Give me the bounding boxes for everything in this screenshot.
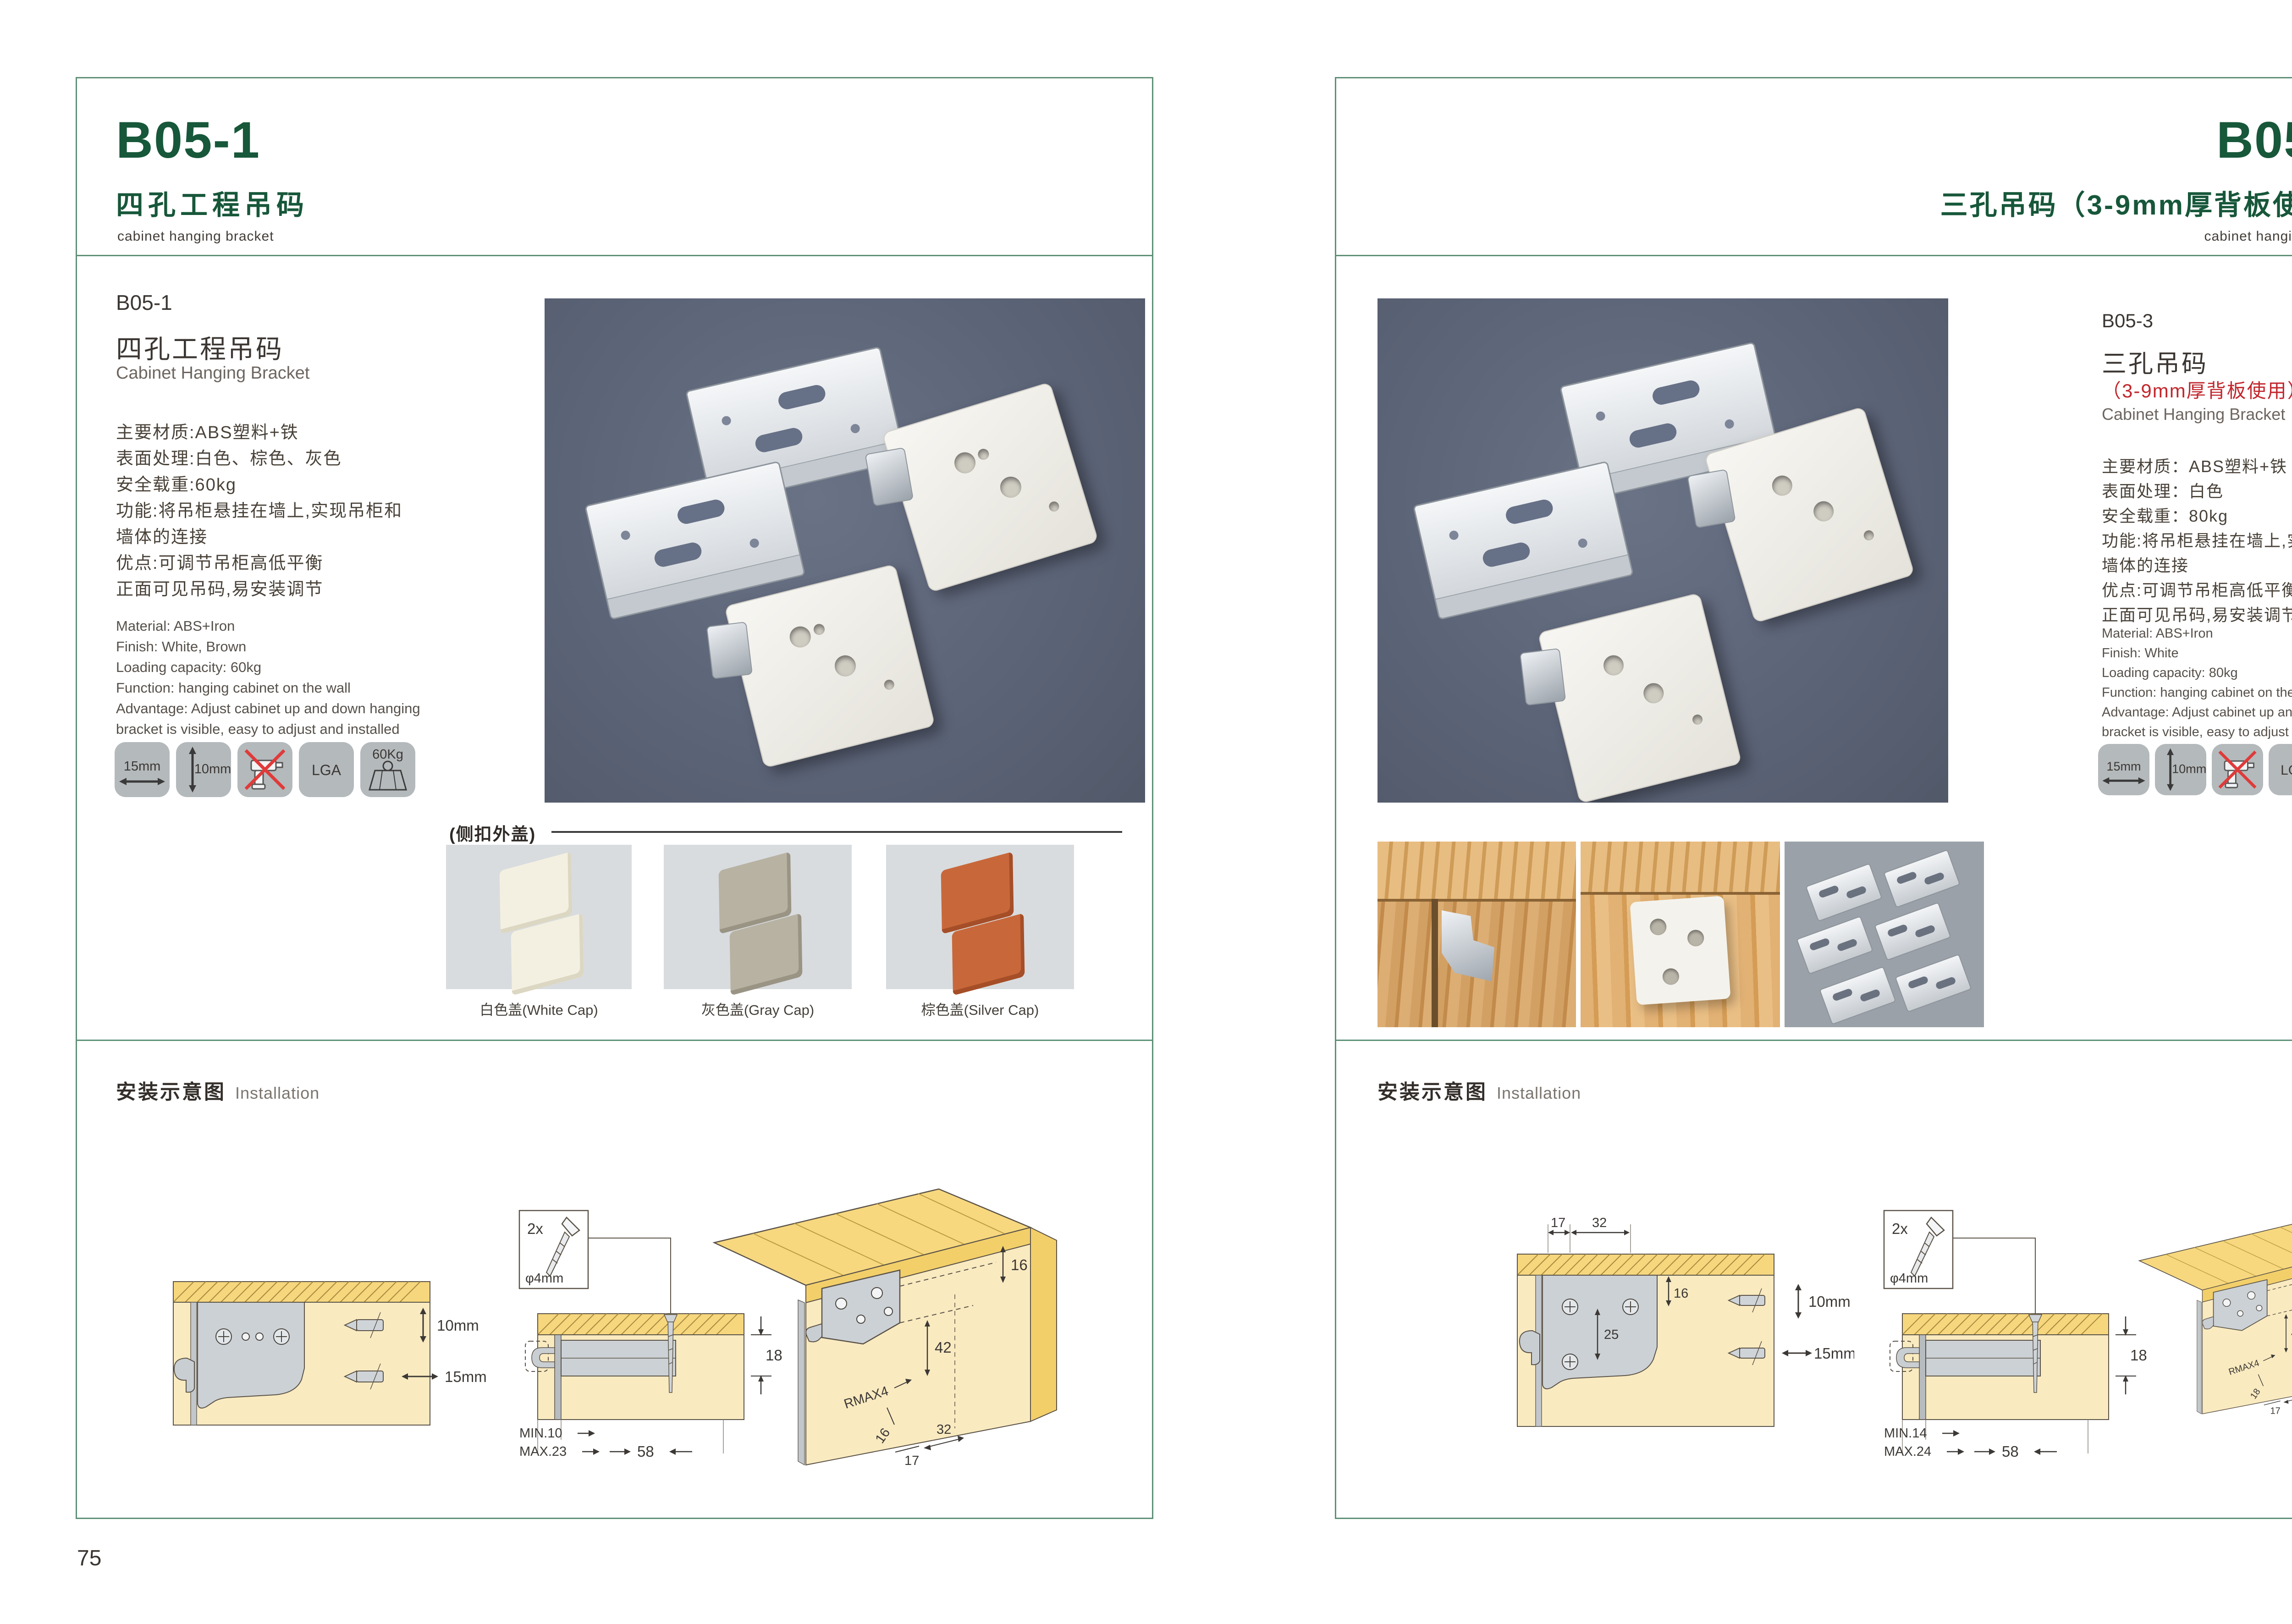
lga-icon: LGA bbox=[299, 742, 354, 797]
specs-en: Material: ABS+Iron Finish: White Loading… bbox=[2102, 624, 2292, 742]
dim-label: 42 bbox=[935, 1339, 952, 1356]
dim-label: 10mm bbox=[1808, 1293, 1851, 1310]
cap-photo-silver bbox=[886, 845, 1074, 989]
dim-label: MIN.14 bbox=[1884, 1426, 1927, 1441]
page-title-cn: 三孔吊码（3-9mm厚背板使用） bbox=[1940, 183, 2292, 223]
cap-label: 棕色盖(Silver Cap) bbox=[886, 998, 1074, 1019]
icon-label: 15mm bbox=[2106, 760, 2141, 773]
white-bracket bbox=[724, 564, 936, 768]
installation-diagram-section: 17 32 16 25 10mm 15mm bbox=[1492, 1211, 1854, 1467]
dim-label: 17 bbox=[904, 1453, 919, 1468]
page-title-cn: 四孔工程吊码 bbox=[116, 183, 309, 223]
icon-label: LGA bbox=[312, 762, 342, 778]
page-title-code: B05-3 bbox=[2216, 110, 2292, 170]
caps-heading: (侧扣外盖) bbox=[449, 820, 536, 845]
cap-photo-gray bbox=[664, 845, 852, 989]
dim-label: 58 bbox=[2002, 1443, 2019, 1460]
spec-line: 优点:可调节吊柜高低平衡 bbox=[2102, 578, 2292, 603]
lga-icon: LGA bbox=[2269, 744, 2292, 795]
page-subtitle-en: cabinet hanging bracket bbox=[2204, 229, 2292, 244]
spec-line: 功能:将吊柜悬挂在墙上,实现吊柜和 bbox=[2102, 528, 2292, 553]
spec-line: Material: ABS+Iron bbox=[116, 616, 420, 636]
icon-label: 15mm bbox=[124, 759, 161, 774]
spec-line: Material: ABS+Iron bbox=[2102, 624, 2292, 644]
spec-line: Finish: White bbox=[2102, 644, 2292, 663]
spec-line: 墙体的连接 bbox=[116, 524, 402, 551]
screw-qty: 2x bbox=[527, 1220, 543, 1237]
installation-diagram-perspective: 16 42 RMAX4 18 17 32 bbox=[2116, 1188, 2292, 1444]
dim-label: 15mm bbox=[1814, 1345, 1854, 1362]
application-photo-hook bbox=[1377, 842, 1576, 1027]
spec-line: 主要材质：ABS塑料+铁 bbox=[2102, 454, 2292, 479]
spec-line: 优点:可调节吊柜高低平衡 bbox=[116, 551, 402, 577]
application-photo-bracket bbox=[1581, 842, 1780, 1027]
dim-label: MIN.10 bbox=[519, 1426, 562, 1441]
dim-label: 17 bbox=[2270, 1406, 2281, 1416]
spec-line: Loading capacity: 80kg bbox=[2102, 663, 2292, 683]
spec-line: Advantage: Adjust cabinet up and down ha… bbox=[2102, 703, 2292, 722]
spec-line: 表面处理：白色 bbox=[2102, 479, 2292, 504]
product-photo bbox=[545, 298, 1145, 803]
installation-diagram-section: 10mm 15mm bbox=[155, 1261, 499, 1435]
product-photo bbox=[1377, 298, 1948, 803]
height-10mm-icon: 10mm bbox=[2155, 744, 2206, 795]
installation-title-cn: 安装示意图 bbox=[1377, 1081, 1488, 1103]
dim-label: MAX.24 bbox=[1884, 1444, 1931, 1459]
right-page: B05-3 三孔吊码（3-9mm厚背板使用） cabinet hanging b… bbox=[1335, 77, 2292, 1519]
height-10mm-icon: 10mm bbox=[176, 742, 231, 797]
spec-line: Function: hanging cabinet on the wall bbox=[116, 677, 420, 698]
header-divider bbox=[77, 255, 1152, 256]
cap-label: 灰色盖(Gray Cap) bbox=[664, 998, 852, 1019]
icon-label: LGA bbox=[2281, 763, 2292, 778]
spec-line: bracket is visible, easy to adjust and i… bbox=[2102, 722, 2292, 742]
installation-title-cn: 安装示意图 bbox=[116, 1081, 226, 1103]
dim-label: 16 bbox=[1674, 1286, 1688, 1301]
dim-label: 17 bbox=[1551, 1216, 1565, 1230]
product-name-note: （3-9mm厚背板使用） bbox=[2102, 375, 2292, 403]
product-name-cn: 四孔工程吊码 bbox=[116, 328, 284, 366]
section-divider bbox=[77, 1040, 1152, 1041]
no-drill-icon bbox=[237, 742, 292, 797]
page-subtitle-en: cabinet hanging bracket bbox=[117, 229, 274, 244]
feature-icons: 15mm 10mm LGA bbox=[2098, 744, 2292, 795]
spec-line: 墙体的连接 bbox=[2102, 553, 2292, 578]
feature-icons: 15mm 10mm LGA bbox=[115, 742, 415, 797]
icon-label: 10mm bbox=[2172, 762, 2206, 776]
specs-en: Material: ABS+Iron Finish: White, Brown … bbox=[116, 616, 420, 739]
product-name-cn: 三孔吊码 bbox=[2102, 343, 2208, 380]
specs-cn: 主要材质：ABS塑料+铁 表面处理：白色 安全载重：80kg 功能:将吊柜悬挂在… bbox=[2102, 454, 2292, 628]
dim-label: 16 bbox=[1011, 1256, 1028, 1273]
dim-label: 32 bbox=[937, 1422, 951, 1437]
dim-label: 25 bbox=[1604, 1327, 1619, 1342]
dim-label: 15mm bbox=[445, 1368, 487, 1385]
spec-line: 安全载重:60kg bbox=[116, 472, 402, 498]
load-60kg-icon: 60Kg bbox=[360, 742, 415, 797]
dim-label: 10mm bbox=[437, 1317, 479, 1334]
product-code: B05-3 bbox=[2102, 310, 2153, 332]
spec-line: 表面处理:白色、棕色、灰色 bbox=[116, 446, 402, 472]
installation-diagram-detail: 2x φ4mm 18 MIN.14 MAX.24 bbox=[1877, 1204, 2152, 1460]
screw-diameter: φ4mm bbox=[1890, 1271, 1928, 1286]
width-15mm-icon: 15mm bbox=[115, 742, 170, 797]
icon-label: 60Kg bbox=[372, 747, 403, 762]
spec-line: Finish: White, Brown bbox=[116, 636, 420, 657]
spec-line: Function: hanging cabinet on the wall bbox=[2102, 683, 2292, 703]
cap-label: 白色盖(White Cap) bbox=[446, 998, 632, 1019]
screw-qty: 2x bbox=[1892, 1220, 1908, 1237]
catalog-spread: { "page": {"left_number": "75", "right_n… bbox=[0, 0, 2292, 1624]
width-15mm-icon: 15mm bbox=[2098, 744, 2149, 795]
installation-title: 安装示意图Installation bbox=[116, 1075, 320, 1105]
installation-title-en: Installation bbox=[1497, 1084, 1581, 1102]
metal-plate bbox=[1413, 461, 1634, 620]
application-photo-plates bbox=[1785, 842, 1984, 1027]
dim-label: 58 bbox=[637, 1443, 654, 1460]
product-code: B05-1 bbox=[116, 290, 172, 315]
spec-line: Advantage: Adjust cabinet up and down ha… bbox=[116, 698, 420, 719]
page-title-code: B05-1 bbox=[116, 110, 260, 170]
cap-photo-white bbox=[446, 845, 632, 989]
white-bracket bbox=[1537, 593, 1742, 803]
spec-line: 主要材质:ABS塑料+铁 bbox=[116, 420, 402, 446]
specs-cn: 主要材质:ABS塑料+铁 表面处理:白色、棕色、灰色 安全载重:60kg 功能:… bbox=[116, 420, 402, 603]
installation-diagram-perspective: 16 42 RMAX4 16 17 32 bbox=[668, 1172, 1104, 1474]
section-divider bbox=[1336, 1040, 2292, 1041]
no-drill-icon bbox=[2212, 744, 2263, 795]
product-name-en: Cabinet Hanging Bracket bbox=[116, 363, 309, 383]
spec-line: 正面可见吊码,易安装调节 bbox=[116, 577, 402, 603]
spec-line: bracket is visible, easy to adjust and i… bbox=[116, 719, 420, 739]
screw-diameter: φ4mm bbox=[525, 1271, 563, 1286]
icon-label: 10mm bbox=[194, 762, 231, 776]
page-number-left: 75 bbox=[77, 1546, 101, 1571]
left-page: B05-1 四孔工程吊码 cabinet hanging bracket B05… bbox=[76, 77, 1153, 1519]
installation-title: 安装示意图Installation bbox=[1377, 1075, 1581, 1105]
header-divider bbox=[1336, 255, 2292, 256]
dim-label: 32 bbox=[1592, 1216, 1607, 1230]
caps-rule bbox=[551, 831, 1122, 833]
spec-line: 安全载重：80kg bbox=[2102, 504, 2292, 528]
spec-line: Loading capacity: 60kg bbox=[116, 657, 420, 677]
product-name-en: Cabinet Hanging Bracket bbox=[2102, 405, 2285, 424]
white-bracket bbox=[882, 382, 1099, 593]
installation-title-en: Installation bbox=[235, 1084, 320, 1102]
dim-label: MAX.23 bbox=[519, 1444, 567, 1459]
spec-line: 功能:将吊柜悬挂在墙上,实现吊柜和 bbox=[116, 498, 402, 524]
